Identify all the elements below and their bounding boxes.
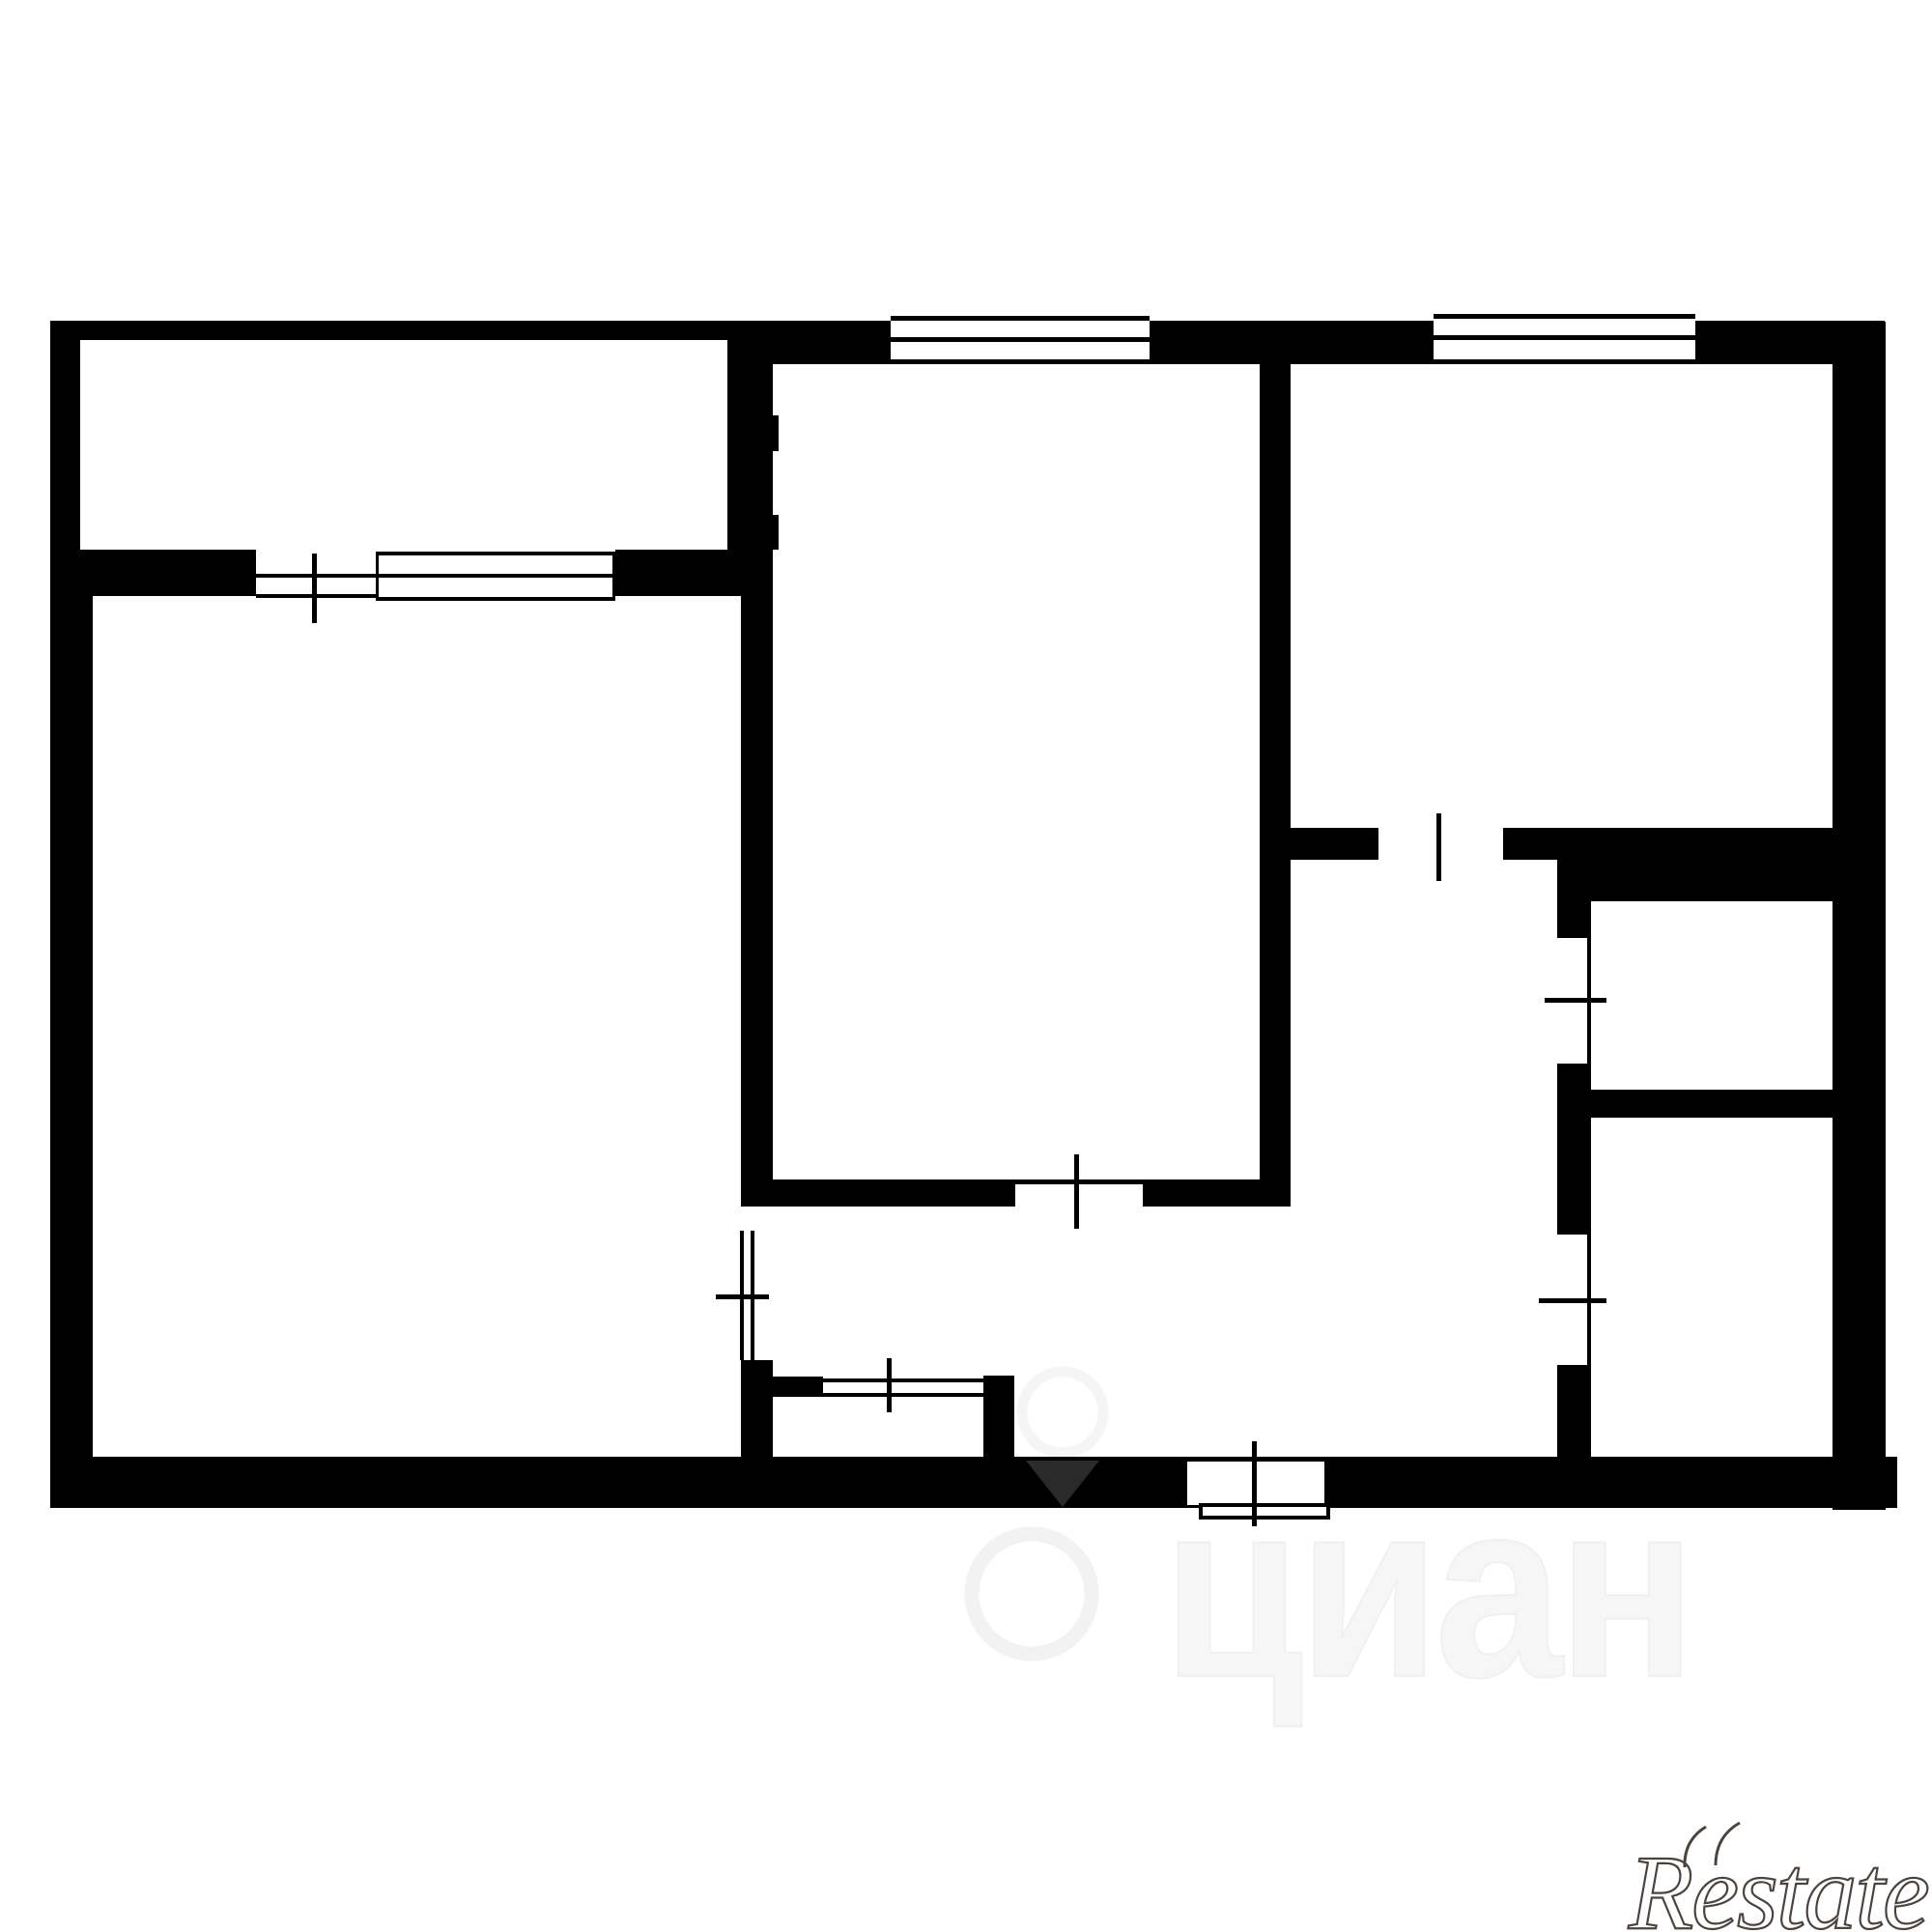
svg-text:Restate: Restate — [1628, 1833, 1928, 1932]
